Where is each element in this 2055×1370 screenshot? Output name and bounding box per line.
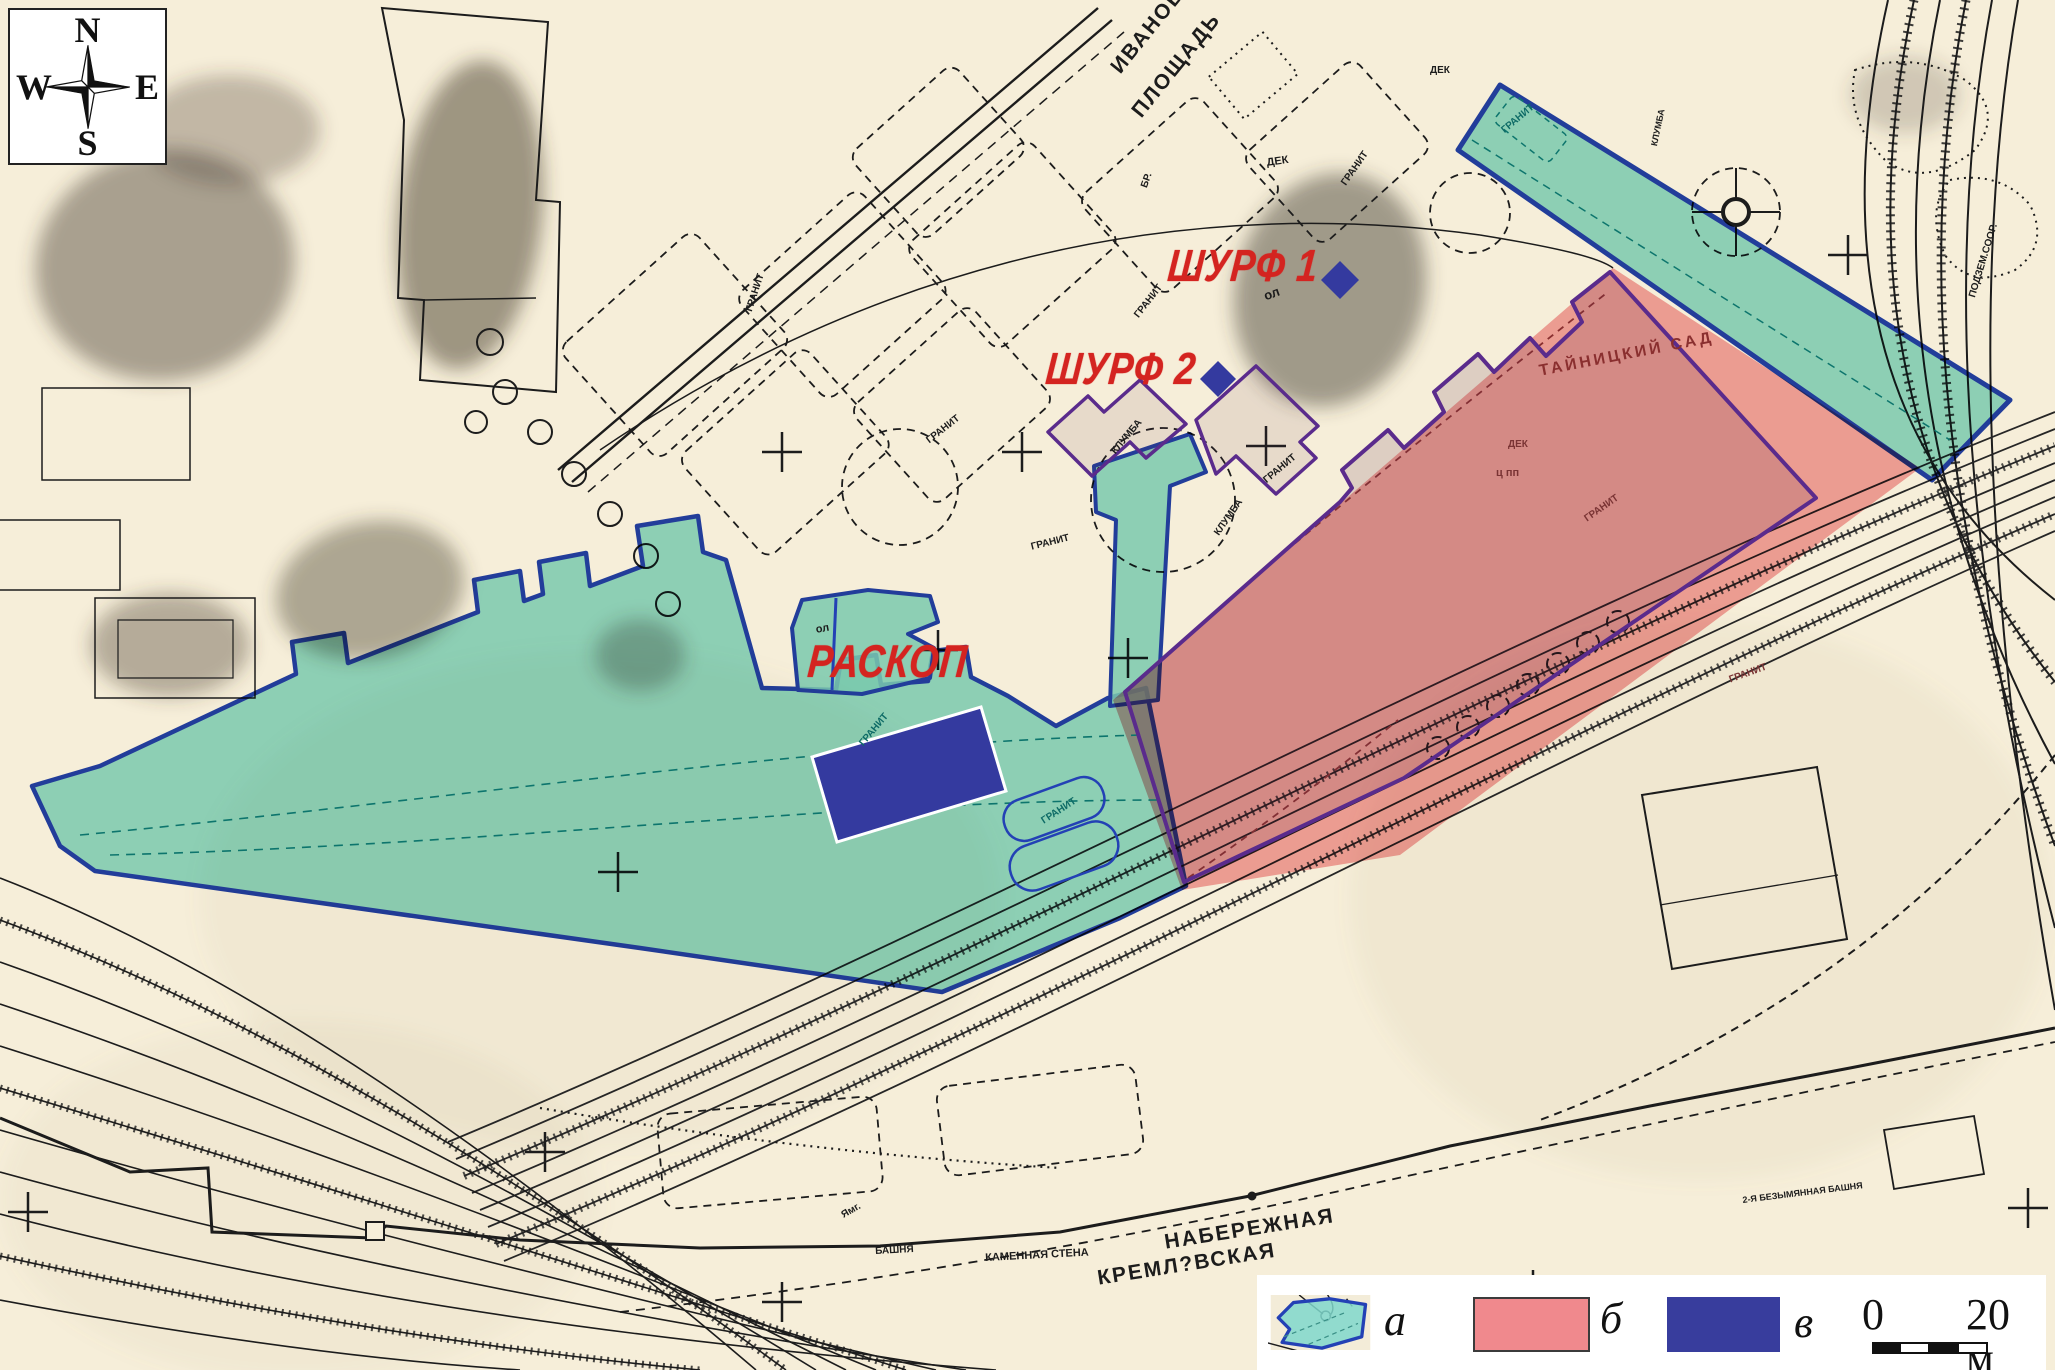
- scale-bar-segment: [1899, 1342, 1930, 1354]
- legend: а б в 0 20 м: [1257, 1275, 2046, 1370]
- map-canvas: ИВАНОВСКАЯПЛОЩАДЬКРЕМЛ?ВСКАЯНАБЕРЕЖНАЯКА…: [0, 0, 2055, 1370]
- legend-sample-a-icon: [1268, 1295, 1373, 1350]
- scale-bar-segment: [1957, 1342, 1988, 1354]
- legend-item-a-label: а: [1384, 1299, 1406, 1343]
- map-label: БАШНЯ: [875, 1245, 914, 1257]
- test-pit-2-label: ШУРФ 2: [1044, 346, 1198, 391]
- compass-star-icon: [40, 39, 136, 135]
- excavation-label: РАСКОП: [806, 638, 969, 684]
- compass-rose: N S W E: [8, 8, 167, 165]
- scale-end-label: 20 м: [1966, 1293, 2046, 1370]
- test-pit-1-label: ШУРФ 1: [1166, 243, 1320, 288]
- legend-swatch-b: [1473, 1297, 1590, 1352]
- map-label: ол: [815, 623, 830, 636]
- map-label: ц пп: [1496, 468, 1519, 479]
- scale-bar-segment: [1872, 1342, 1899, 1354]
- map-drawing: [0, 0, 2055, 1370]
- map-label: ДЕК: [1430, 66, 1450, 76]
- scale-bar-segment: [1930, 1342, 1957, 1354]
- scale-bar: [1872, 1342, 1988, 1354]
- scale-start-label: 0: [1862, 1293, 1884, 1337]
- legend-swatch-v: [1667, 1297, 1780, 1352]
- legend-item-v-label: в: [1794, 1301, 1813, 1345]
- map-label: ДЕК: [1508, 440, 1528, 450]
- compass-east-label: E: [135, 69, 159, 105]
- legend-item-b-label: б: [1600, 1297, 1622, 1341]
